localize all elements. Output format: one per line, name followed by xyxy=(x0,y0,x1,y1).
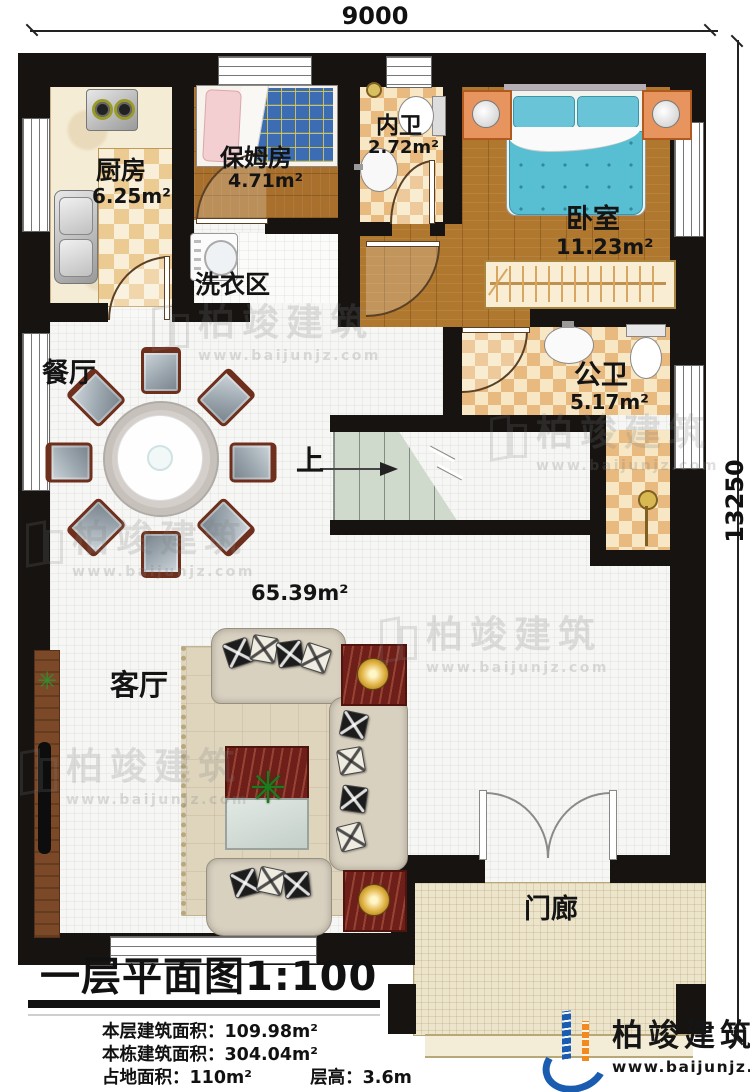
inner-bathroom-label: 内卫 xyxy=(376,114,422,138)
stat-land-area-label: 占地面积： xyxy=(102,1068,190,1088)
wardrobe xyxy=(484,260,676,309)
sink-public xyxy=(544,326,594,364)
title-underline-thin xyxy=(28,1014,380,1016)
wall-laundry-bottom xyxy=(172,303,250,322)
bedroom-door-leaf xyxy=(366,241,440,247)
brand-logo-url: www.baijunjz.com xyxy=(612,1058,750,1076)
sink-inner-faucet xyxy=(354,164,363,170)
lamp-left xyxy=(472,100,500,128)
stat-floor-area: 本层建筑面积：109.98m² xyxy=(102,1021,412,1044)
floor-plan: 上 ✳ ✳ 厨房 6.25m² 保姆房 4.71m² 洗衣区 内卫 2.72m² xyxy=(0,0,750,1092)
shower-stem-public xyxy=(645,506,648,546)
window-top-innerbath xyxy=(386,56,432,88)
public-bathroom-floor-column xyxy=(606,430,670,550)
publicbath-door-leaf xyxy=(462,327,530,333)
logo-swoosh xyxy=(536,1031,615,1092)
dining-chair-w xyxy=(46,443,93,483)
wall-publicbath-col-bottom xyxy=(590,550,706,566)
stat-building-area-label: 本栋建筑面积： xyxy=(102,1045,225,1065)
sofa-pillow xyxy=(336,746,366,776)
dimension-width-line xyxy=(30,30,718,32)
dining-table-center xyxy=(147,445,173,471)
stats-block: 本层建筑面积：109.98m² 本栋建筑面积：304.04m² 占地面积：110… xyxy=(102,1021,412,1090)
sink-basin-top xyxy=(59,197,93,235)
dining-chair-e xyxy=(230,443,277,483)
wall-publicbath-col-left xyxy=(590,432,606,550)
inner-bathroom-area: 2.72m² xyxy=(368,139,439,158)
wardrobe-hangers xyxy=(496,266,660,302)
sink-basin-bottom xyxy=(59,239,93,277)
sofa-pillow xyxy=(339,784,368,813)
wall-mid-vertical xyxy=(338,85,360,327)
television xyxy=(38,742,51,854)
nanny-room-label: 保姆房 xyxy=(220,146,292,171)
toilet-public-tank xyxy=(626,324,666,337)
wall-porch-top-right xyxy=(610,855,706,883)
double-bed xyxy=(506,90,646,216)
porch-label: 门廊 xyxy=(524,896,578,924)
shower-head-public xyxy=(638,490,658,510)
living-area: 65.39m² xyxy=(251,582,349,604)
sofa-pillow xyxy=(339,710,370,741)
kitchen-door-leaf xyxy=(164,256,170,320)
bed-pillow-right xyxy=(577,96,639,128)
stat-floor-area-value: 109.98m² xyxy=(225,1022,318,1042)
entry-door-leaf-left xyxy=(479,790,487,860)
wall-porch-top-left xyxy=(413,855,485,883)
stat-floor-height-value: 3.6m xyxy=(363,1068,412,1088)
coffee-table-plant: ✳ xyxy=(243,764,293,814)
wall-kitchen-bottom xyxy=(50,303,108,322)
plan-title-scale: 1:100 xyxy=(245,954,377,1000)
stat-building-area: 本栋建筑面积：304.04m² xyxy=(102,1044,412,1067)
toilet-inner-tank xyxy=(432,96,446,136)
window-top-nanny xyxy=(218,56,312,88)
wall-nanny-bottom xyxy=(265,218,338,234)
wall-innerbath-bottom-right xyxy=(430,222,445,236)
washer-controls xyxy=(194,240,201,274)
sofa-pillow xyxy=(256,866,287,897)
stairs-up-label: 上 xyxy=(296,446,324,475)
nightstand-right xyxy=(642,90,692,140)
brand-logo-texts: 柏竣建筑 www.baijunjz.com xyxy=(612,1010,750,1076)
window-left-kitchen xyxy=(22,118,50,232)
stat-floor-area-label: 本层建筑面积： xyxy=(102,1022,225,1042)
dimension-height: 13250 xyxy=(721,426,749,576)
sofa-pillow xyxy=(249,634,279,664)
dining-label: 餐厅 xyxy=(42,360,96,388)
public-bathroom-area: 5.17m² xyxy=(570,392,649,413)
stat-land-area-value: 110m² xyxy=(190,1068,252,1088)
brand-logo: 柏竣建筑 www.baijunjz.com xyxy=(540,1004,750,1090)
wall-top xyxy=(18,53,706,87)
stat-building-area-value: 304.04m² xyxy=(225,1045,318,1065)
dining-chair-s xyxy=(141,531,181,578)
stat-floor-height-label: 层高： xyxy=(310,1068,363,1088)
wall-innerbath-bottom-left xyxy=(358,222,392,236)
bedroom-label: 卧室 xyxy=(566,206,620,234)
sofa-pillow xyxy=(283,871,312,900)
stairs-arrow-head xyxy=(380,462,398,476)
bed-pillow-left xyxy=(513,96,575,128)
window-right-publicbath xyxy=(674,365,704,469)
logo-tower-orange xyxy=(578,1018,593,1064)
plan-title-text: 一层平面图 xyxy=(40,954,245,1000)
wall-stairs-top xyxy=(330,415,606,432)
stove-burner-right xyxy=(114,99,135,120)
table-lamp-top xyxy=(357,658,389,690)
gas-stove xyxy=(86,89,138,131)
side-table-bottom xyxy=(343,870,407,932)
brand-logo-icon xyxy=(540,1006,606,1086)
lamp-right xyxy=(652,100,680,128)
kitchen-area: 6.25m² xyxy=(92,186,171,207)
stat-land-height: 占地面积：110m² 层高：3.6m xyxy=(102,1067,412,1090)
toilet-public-bowl xyxy=(630,337,662,379)
dining-chair-n xyxy=(141,347,181,394)
side-table-top xyxy=(341,644,407,706)
nightstand-left xyxy=(462,90,512,140)
tv-plant: ✳ xyxy=(32,666,62,696)
sink-public-faucet xyxy=(562,321,574,328)
stairs-arrow-line xyxy=(320,468,382,470)
logo-tower-blue xyxy=(558,1007,575,1063)
title-underline xyxy=(28,1000,380,1008)
stove-burner-left xyxy=(92,99,113,120)
dimension-width: 9000 xyxy=(330,2,420,30)
wall-publicbath-left xyxy=(443,327,462,415)
plan-title: 一层平面图1:100 xyxy=(40,944,377,1002)
laundry-label: 洗衣区 xyxy=(195,272,270,298)
wall-stairs-bottom xyxy=(330,520,596,535)
nanny-room-area: 4.71m² xyxy=(228,172,303,192)
bedroom-area: 11.23m² xyxy=(556,236,654,258)
living-label: 客厅 xyxy=(110,670,168,700)
brand-logo-name: 柏竣建筑 xyxy=(612,1010,750,1055)
innerbath-door-leaf xyxy=(429,160,435,224)
kitchen-label: 厨房 xyxy=(96,158,146,184)
entry-door-leaf-right xyxy=(609,790,617,860)
table-lamp-bottom xyxy=(358,884,390,916)
public-bathroom-label: 公卫 xyxy=(574,362,628,390)
shower-head-inner xyxy=(366,82,382,98)
nanny-door-leaf xyxy=(196,218,268,224)
